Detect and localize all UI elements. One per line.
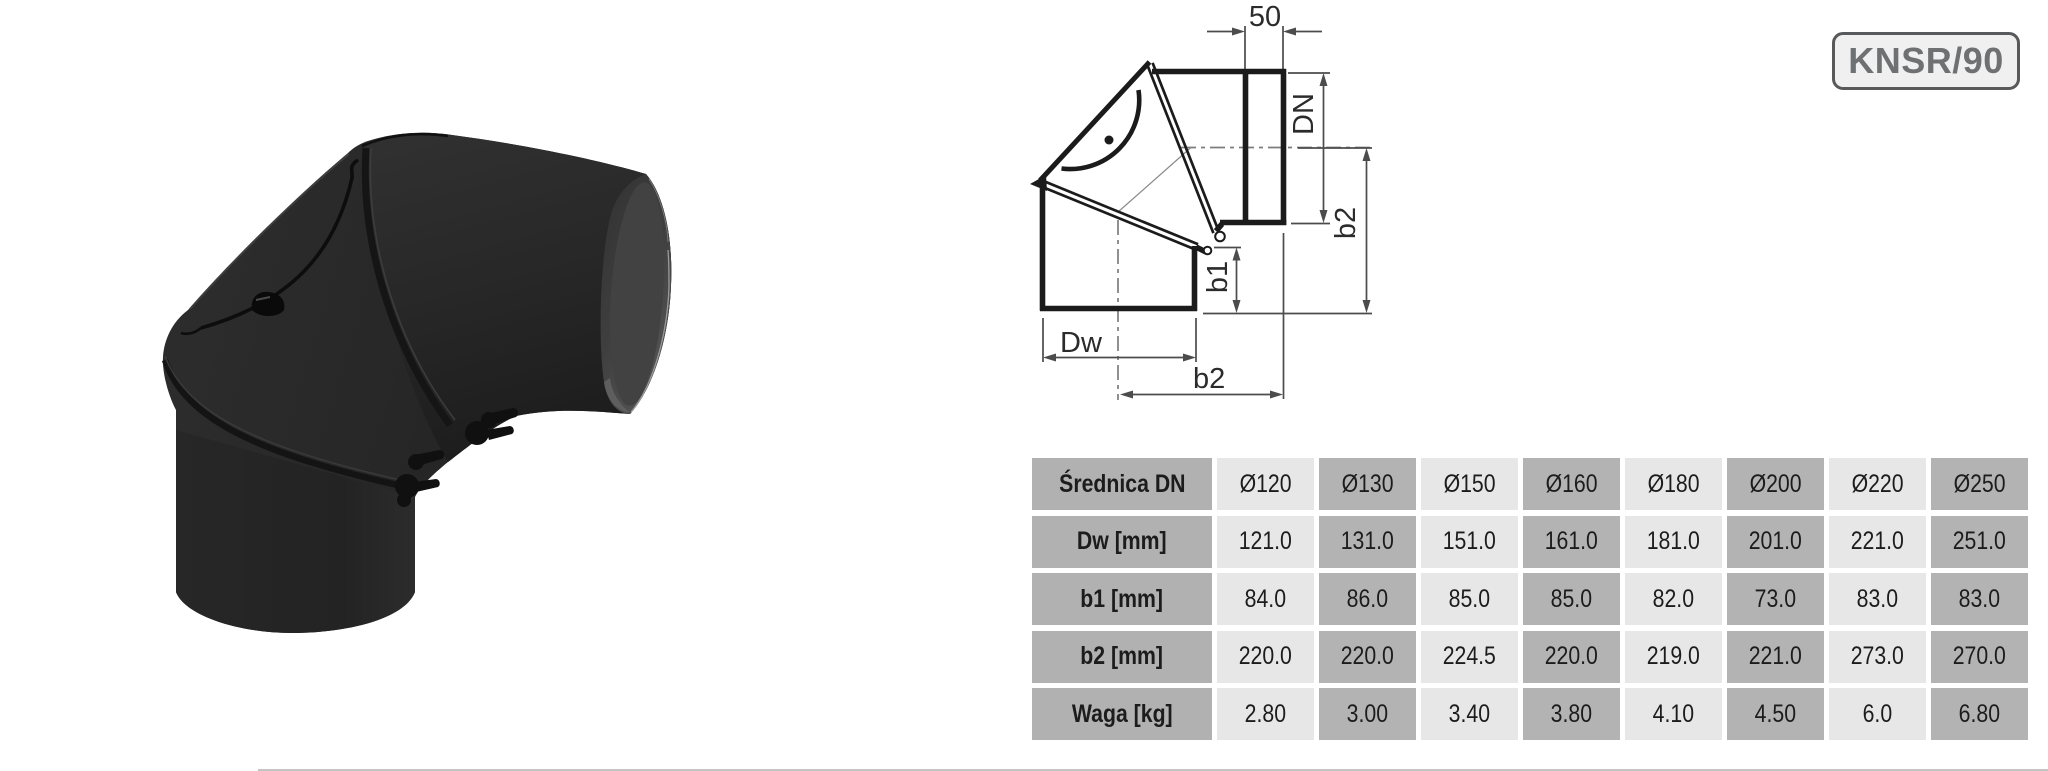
svg-text:b1: b1: [1202, 261, 1234, 293]
svg-text:Dw: Dw: [1060, 327, 1103, 359]
svg-text:b2: b2: [1193, 363, 1225, 395]
svg-text:DN: DN: [1288, 93, 1320, 135]
svg-text:b2: b2: [1330, 207, 1362, 239]
svg-text:50: 50: [1249, 1, 1281, 33]
